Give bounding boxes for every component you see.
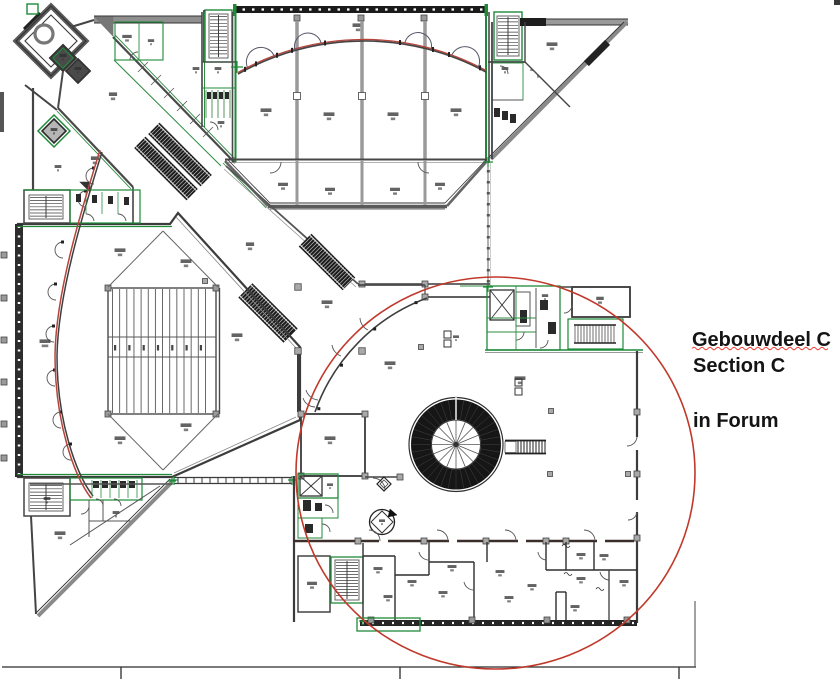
svg-text:Section C: Section C [693, 355, 785, 377]
svg-text:in Forum: in Forum [693, 410, 779, 432]
svg-text:Gebouwdeel C: Gebouwdeel C [692, 329, 831, 351]
